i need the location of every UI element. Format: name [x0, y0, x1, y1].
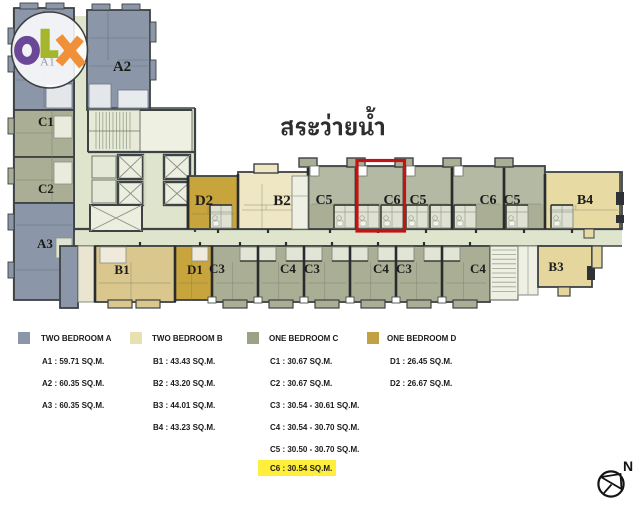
- svg-text:B2 : 43.20 SQ.M.: B2 : 43.20 SQ.M.: [153, 379, 215, 388]
- svg-text:C6: C6: [479, 193, 496, 208]
- svg-text:C6 : 30.54 SQ.M.: C6 : 30.54 SQ.M.: [270, 464, 332, 473]
- svg-text:C3: C3: [304, 261, 320, 276]
- svg-text:C4: C4: [280, 261, 296, 276]
- svg-text:A3 : 60.35 SQ.M.: A3 : 60.35 SQ.M.: [42, 401, 104, 410]
- svg-text:C4: C4: [373, 261, 389, 276]
- svg-text:C2: C2: [38, 181, 54, 196]
- svg-text:C4: C4: [470, 261, 486, 276]
- svg-text:C5: C5: [409, 193, 426, 208]
- svg-text:C5: C5: [503, 193, 520, 208]
- svg-text:C3: C3: [396, 261, 412, 276]
- svg-text:D1 : 26.45 SQ.M.: D1 : 26.45 SQ.M.: [390, 357, 452, 366]
- svg-text:C1: C1: [38, 114, 54, 129]
- svg-text:C6: C6: [383, 193, 400, 208]
- svg-text:C1 : 30.67 SQ.M.: C1 : 30.67 SQ.M.: [270, 357, 332, 366]
- svg-text:B4 : 43.23 SQ.M.: B4 : 43.23 SQ.M.: [153, 423, 215, 432]
- svg-text:B3: B3: [548, 259, 564, 274]
- svg-text:D2 : 26.67 SQ.M.: D2 : 26.67 SQ.M.: [390, 379, 452, 388]
- svg-text:N: N: [623, 458, 633, 474]
- svg-text:B1 : 43.43 SQ.M.: B1 : 43.43 SQ.M.: [153, 357, 215, 366]
- svg-text:C5 : 30.50 - 30.70 SQ.M.: C5 : 30.50 - 30.70 SQ.M.: [270, 445, 359, 454]
- svg-text:ONE BEDROOM D: ONE BEDROOM D: [387, 334, 457, 343]
- svg-text:A1 : 59.71 SQ.M.: A1 : 59.71 SQ.M.: [42, 357, 104, 366]
- svg-text:B3 : 44.01 SQ.M.: B3 : 44.01 SQ.M.: [153, 401, 215, 410]
- svg-text:TWO BEDROOM A: TWO BEDROOM A: [41, 334, 112, 343]
- svg-text:B1: B1: [114, 262, 129, 277]
- svg-text:TWO BEDROOM B: TWO BEDROOM B: [152, 334, 223, 343]
- svg-text:D2: D2: [195, 193, 213, 209]
- svg-text:C3: C3: [209, 261, 225, 276]
- svg-text:A2: A2: [113, 59, 131, 75]
- svg-text:C2 : 30.67 SQ.M.: C2 : 30.67 SQ.M.: [270, 379, 332, 388]
- svg-text:B2: B2: [273, 193, 291, 209]
- svg-text:A3: A3: [37, 236, 53, 251]
- svg-text:C4 : 30.54 - 30.70 SQ.M.: C4 : 30.54 - 30.70 SQ.M.: [270, 423, 359, 432]
- svg-text:ONE BEDROOM C: ONE BEDROOM C: [269, 334, 339, 343]
- svg-text:B4: B4: [577, 193, 593, 208]
- svg-text:D1: D1: [187, 262, 203, 277]
- svg-text:C3 : 30.54 - 30.61 SQ.M.: C3 : 30.54 - 30.61 SQ.M.: [270, 401, 359, 410]
- svg-text:A2 : 60.35 SQ.M.: A2 : 60.35 SQ.M.: [42, 379, 104, 388]
- svg-text:C5: C5: [315, 193, 332, 208]
